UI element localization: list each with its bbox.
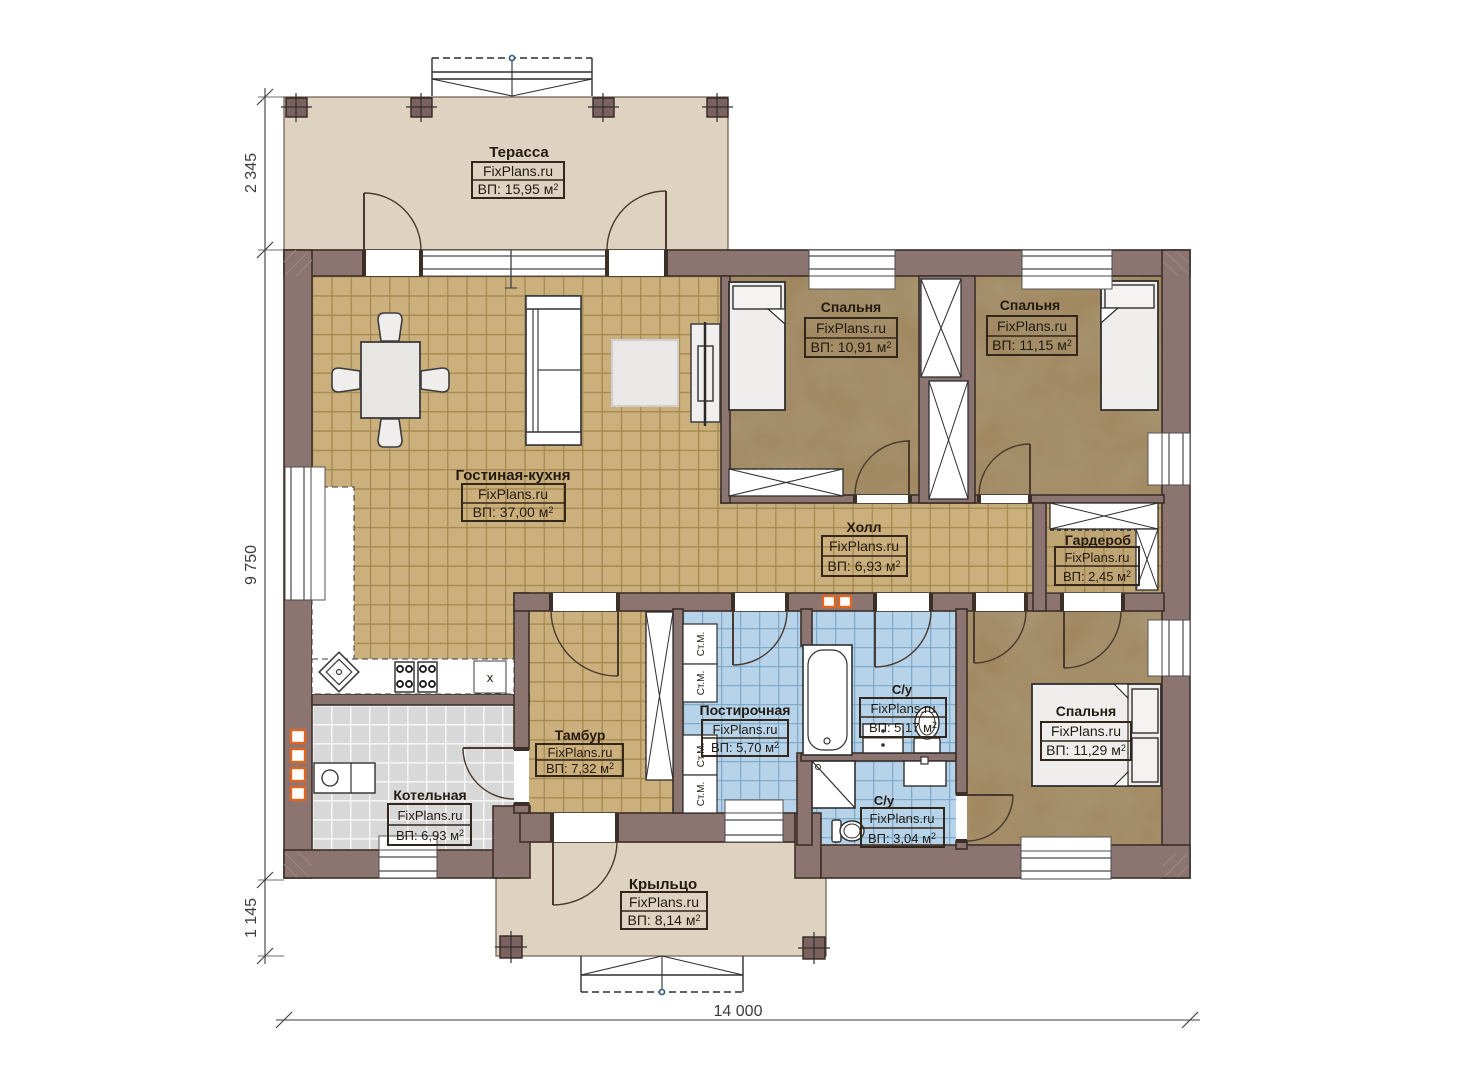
svg-text:1 145: 1 145 <box>243 898 260 938</box>
svg-text:ВП: 5,17 м2: ВП: 5,17 м2 <box>869 720 937 735</box>
svg-text:ВП: 5,70 м2: ВП: 5,70 м2 <box>711 740 779 755</box>
svg-text:FixPlans.ru: FixPlans.ru <box>816 320 886 336</box>
svg-text:ВП: 11,15 м2: ВП: 11,15 м2 <box>992 337 1072 353</box>
svg-text:ВП: 8,14 м2: ВП: 8,14 м2 <box>628 912 701 928</box>
svg-text:Ст.М.: Ст.М. <box>696 671 707 696</box>
svg-text:FixPlans.ru: FixPlans.ru <box>483 163 553 179</box>
svg-text:14 000: 14 000 <box>714 1003 763 1020</box>
svg-text:FixPlans.ru: FixPlans.ru <box>869 811 934 826</box>
svg-text:ВП: 10,91 м2: ВП: 10,91 м2 <box>811 339 892 355</box>
svg-text:ВП: 6,93 м2: ВП: 6,93 м2 <box>828 558 901 574</box>
svg-text:Спальня: Спальня <box>1000 297 1060 313</box>
svg-text:x: x <box>487 670 494 685</box>
svg-text:Гостиная-кухня: Гостиная-кухня <box>456 467 571 484</box>
svg-text:Ст.М.: Ст.М. <box>696 782 707 807</box>
svg-text:Холл: Холл <box>846 519 881 535</box>
svg-text:ВП: 3,04 м2: ВП: 3,04 м2 <box>868 831 936 846</box>
svg-text:ВП: 7,32 м2: ВП: 7,32 м2 <box>546 761 614 776</box>
svg-text:FixPlans.ru: FixPlans.ru <box>629 894 699 910</box>
svg-text:ВП: 2,45 м2: ВП: 2,45 м2 <box>1063 569 1131 584</box>
svg-text:2 345: 2 345 <box>243 153 260 193</box>
svg-text:Тамбур: Тамбур <box>555 727 606 743</box>
svg-text:FixPlans.ru: FixPlans.ru <box>829 538 899 554</box>
svg-text:FixPlans.ru: FixPlans.ru <box>997 318 1067 334</box>
svg-text:Терасса: Терасса <box>489 144 549 161</box>
svg-text:FixPlans.ru: FixPlans.ru <box>870 701 935 716</box>
svg-text:ВП: 15,95 м2: ВП: 15,95 м2 <box>478 181 559 197</box>
svg-text:Гардероб: Гардероб <box>1065 532 1132 548</box>
svg-text:FixPlans.ru: FixPlans.ru <box>547 745 612 760</box>
svg-text:Спальня: Спальня <box>1056 703 1116 719</box>
svg-text:ВП: 37,00 м2: ВП: 37,00 м2 <box>473 504 554 520</box>
svg-text:FixPlans.ru: FixPlans.ru <box>1064 550 1129 565</box>
svg-text:FixPlans.ru: FixPlans.ru <box>1051 723 1121 739</box>
svg-text:С/у: С/у <box>874 793 895 808</box>
svg-text:Котельная: Котельная <box>393 787 466 803</box>
svg-text:Крыльцо: Крыльцо <box>629 876 697 893</box>
svg-text:Спальня: Спальня <box>821 299 881 315</box>
svg-text:Ст.М.: Ст.М. <box>696 632 707 657</box>
svg-text:С/у: С/у <box>892 682 913 697</box>
svg-text:FixPlans.ru: FixPlans.ru <box>478 486 548 502</box>
svg-text:9 750: 9 750 <box>243 545 260 585</box>
svg-text:ВП: 6,93 м2: ВП: 6,93 м2 <box>396 828 464 843</box>
svg-text:FixPlans.ru: FixPlans.ru <box>397 808 462 823</box>
svg-text:FixPlans.ru: FixPlans.ru <box>712 722 777 737</box>
svg-text:ВП: 11,29 м2: ВП: 11,29 м2 <box>1046 742 1126 758</box>
svg-text:Постирочная: Постирочная <box>700 702 791 718</box>
